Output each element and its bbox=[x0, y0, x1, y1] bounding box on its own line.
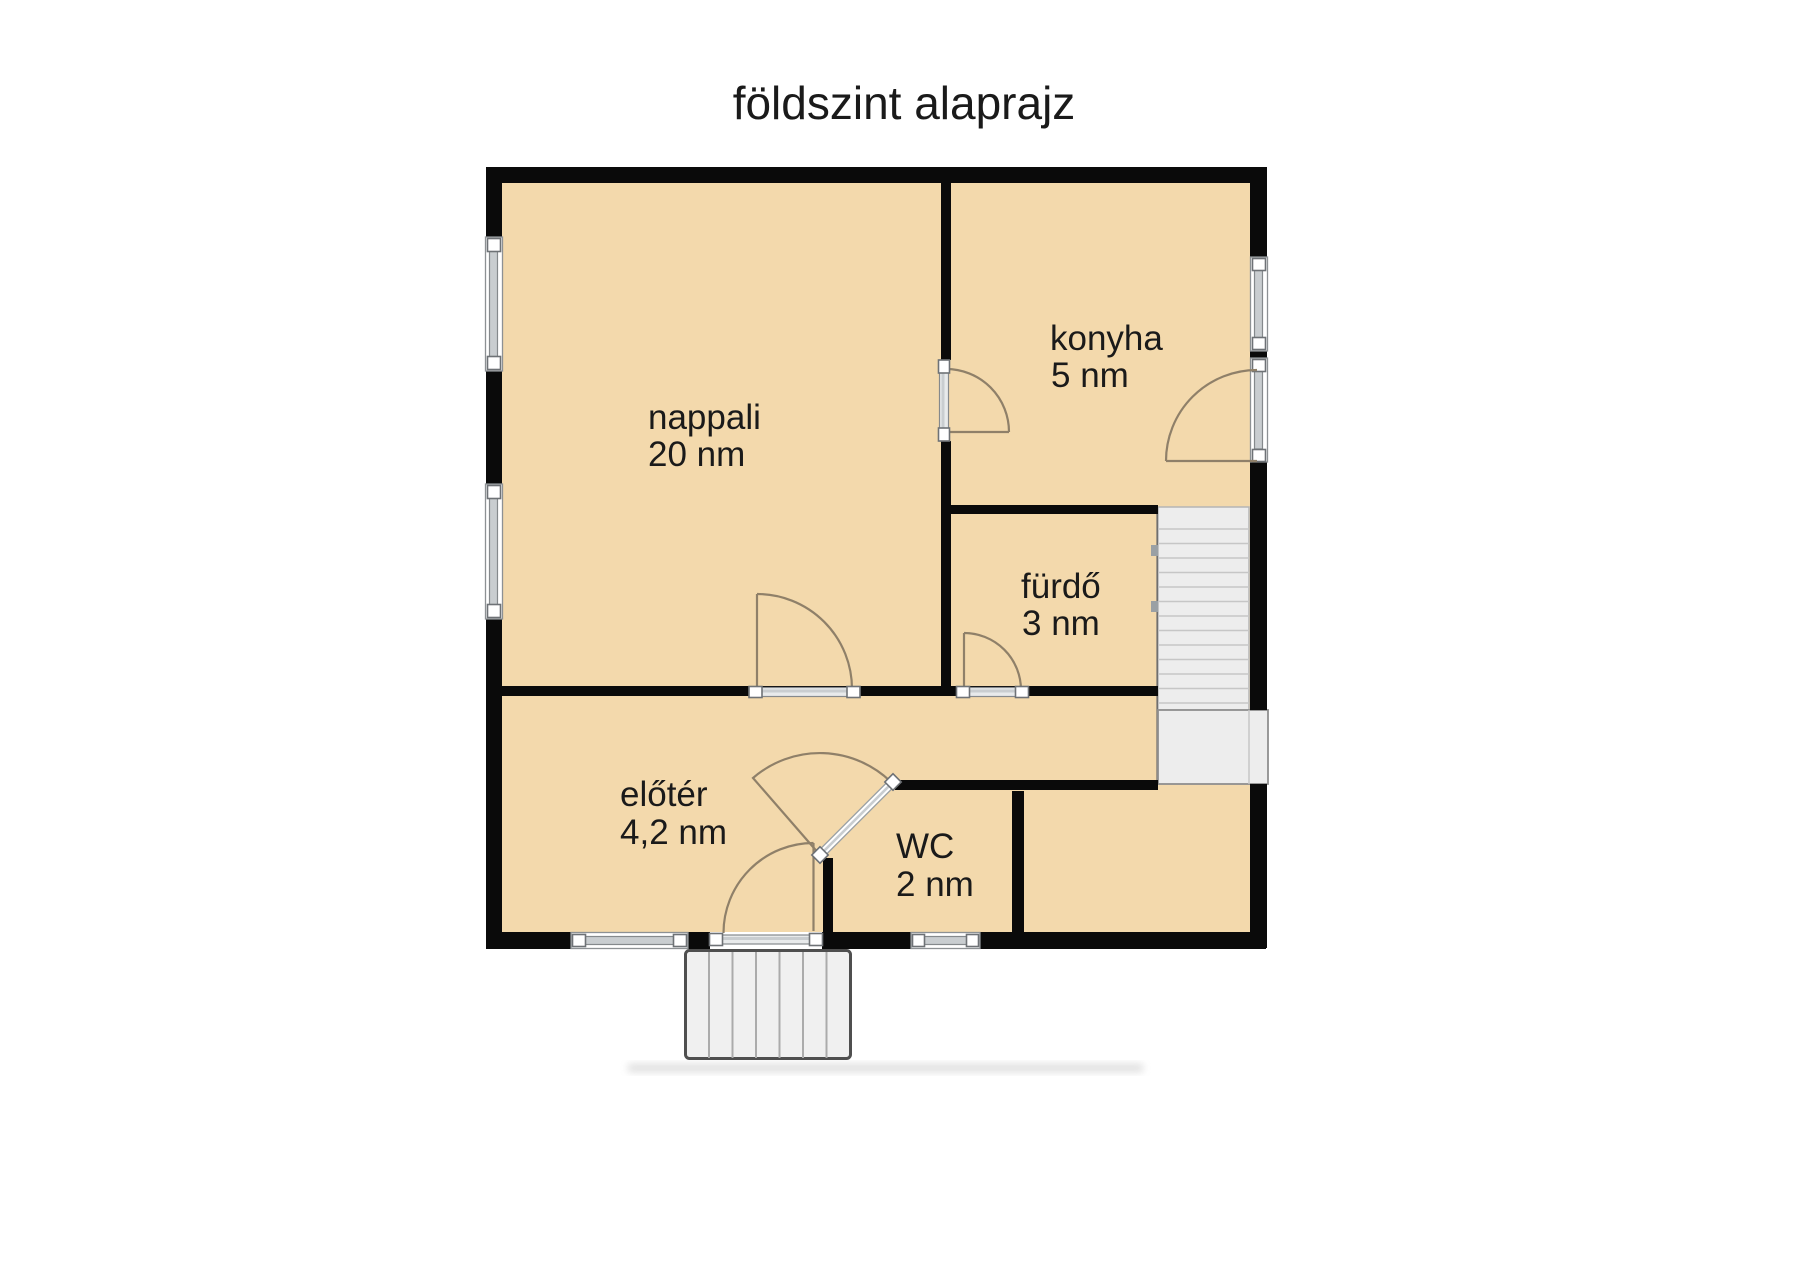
svg-text:konyha: konyha bbox=[1050, 319, 1163, 358]
svg-text:3 nm: 3 nm bbox=[1022, 604, 1100, 643]
svg-text:5 nm: 5 nm bbox=[1051, 356, 1129, 395]
svg-text:WC: WC bbox=[896, 827, 954, 866]
svg-text:előtér: előtér bbox=[620, 775, 708, 814]
svg-text:nappali: nappali bbox=[648, 398, 761, 437]
svg-text:4,2 nm: 4,2 nm bbox=[620, 813, 727, 852]
svg-text:fürdő: fürdő bbox=[1021, 567, 1101, 606]
svg-text:20 nm: 20 nm bbox=[648, 435, 745, 474]
svg-text:földszint alaprajz: földszint alaprajz bbox=[733, 77, 1076, 129]
svg-text:2 nm: 2 nm bbox=[896, 865, 974, 904]
